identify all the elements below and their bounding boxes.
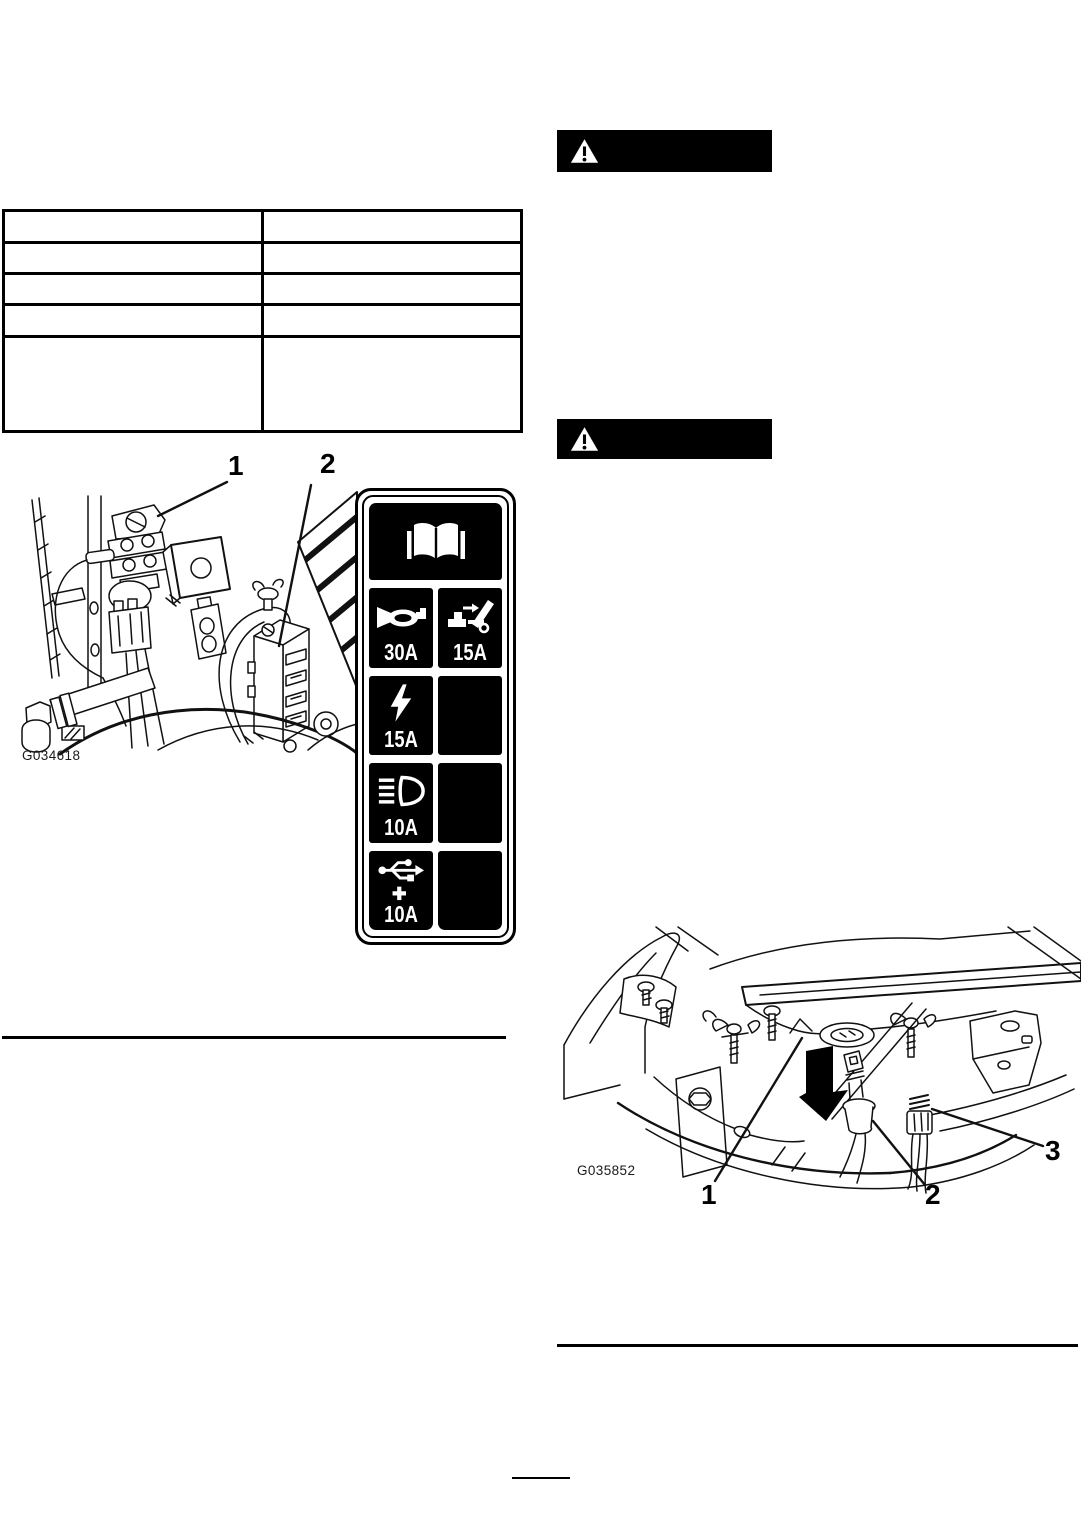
fuse-row: 10A xyxy=(369,851,502,931)
fuse-cell-attachment: 15A xyxy=(438,588,502,668)
spec-table-cell xyxy=(4,305,263,337)
spec-table-cell xyxy=(263,305,522,337)
fuse-decal-header-cell xyxy=(369,503,502,580)
spec-table-cell xyxy=(4,242,263,274)
horn-icon xyxy=(375,601,427,631)
callout-1-label: 1 xyxy=(228,452,244,480)
attachment-dump-icon xyxy=(444,598,496,634)
headlight-figure: G035852 1 2 3 xyxy=(560,925,1081,1215)
fuse-row: 10A xyxy=(369,763,502,843)
fuse-row: 30A 15A xyxy=(369,588,502,668)
spec-table-cell xyxy=(263,242,522,274)
fuse-amp-label: 10A xyxy=(375,814,426,841)
spec-table-cell xyxy=(263,211,522,243)
spec-table-cell xyxy=(4,336,263,431)
fuse-cell-horn: 30A xyxy=(369,588,433,668)
fuse-decal: 30A 15A xyxy=(355,488,516,945)
spec-table-cell xyxy=(4,211,263,243)
table-row xyxy=(4,211,522,243)
table-row xyxy=(4,274,522,305)
operators-manual-icon xyxy=(403,519,469,565)
fuse-cell-usb: 10A xyxy=(369,851,433,931)
warning-banner-top xyxy=(557,130,772,172)
table-row xyxy=(4,305,522,337)
graphic-id-label: G035852 xyxy=(577,1163,635,1178)
table-row xyxy=(4,336,522,431)
fuse-amp-label: 15A xyxy=(375,726,426,753)
spec-table-cell xyxy=(263,336,522,431)
callout-3-label: 3 xyxy=(1045,1137,1061,1165)
callout-2-label: 2 xyxy=(320,450,336,478)
warning-triangle-icon xyxy=(570,138,599,164)
footer-rule xyxy=(512,1477,570,1479)
usb-charge-port-icon xyxy=(377,853,425,903)
headlight-line-art xyxy=(560,925,1081,1215)
spec-table-cell xyxy=(263,274,522,305)
fuse-amp-label: 15A xyxy=(444,639,495,666)
warning-banner-bottom xyxy=(557,419,772,459)
fuse-cell-blank-2 xyxy=(438,763,502,843)
fuse-cell-power-point: 15A xyxy=(369,676,433,756)
fuse-cell-blank-3 xyxy=(438,851,502,931)
warning-triangle-icon xyxy=(570,426,599,452)
spec-table-cell xyxy=(4,274,263,305)
fuse-amp-label: 10A xyxy=(375,901,426,928)
fuse-cell-blank-1 xyxy=(438,676,502,756)
spec-table xyxy=(2,209,523,433)
callout-2-label: 2 xyxy=(925,1181,941,1209)
fuse-decal-inner: 30A 15A xyxy=(362,495,509,938)
fuse-row: 15A xyxy=(369,676,502,756)
power-point-icon xyxy=(387,682,415,724)
fuse-cell-headlights: 10A xyxy=(369,763,433,843)
graphic-id-label: G034618 xyxy=(22,748,80,763)
manual-page: 1 2 G034618 xyxy=(0,0,1081,1514)
headlights-icon xyxy=(376,774,426,808)
table-row xyxy=(4,242,522,274)
section-divider-right xyxy=(557,1344,1078,1347)
callout-1-label: 1 xyxy=(701,1181,717,1209)
section-divider-left xyxy=(2,1036,506,1039)
fuse-amp-label: 30A xyxy=(375,639,426,666)
